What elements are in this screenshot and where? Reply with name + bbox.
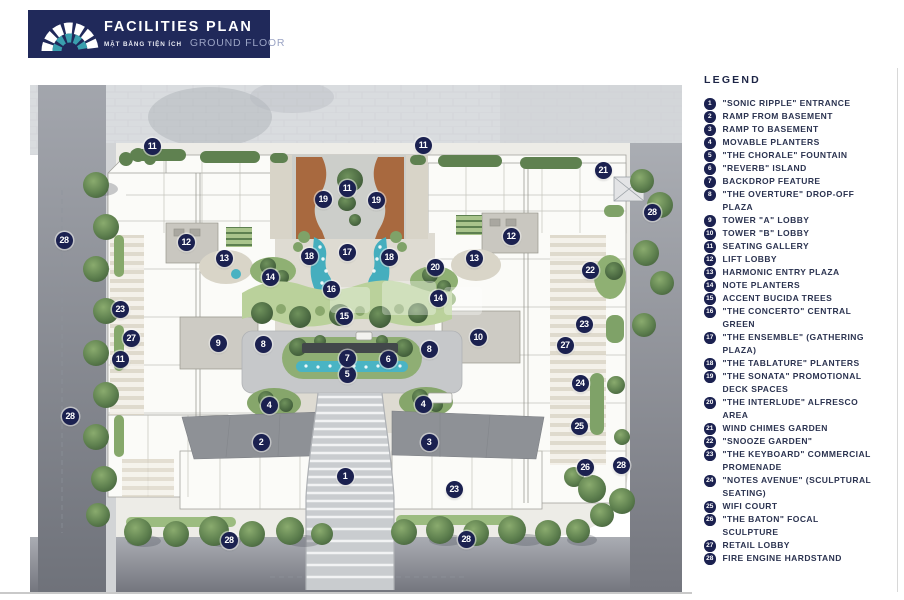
legend-item-number: 15 (704, 293, 716, 305)
legend-item-label: FIRE ENGINE HARDSTAND (723, 552, 842, 565)
legend-item: 20 "THE INTERLUDE" ALFRESCO AREA (704, 396, 900, 422)
legend-item-number: 20 (704, 397, 716, 409)
legend-item-number: 27 (704, 540, 716, 552)
legend-item-label: RAMP FROM BASEMENT (723, 110, 833, 123)
legend-list: 1 "SONIC RIPPLE" ENTRANCE 2 RAMP FROM BA… (704, 97, 900, 565)
legend-item-label: "THE BATON" FOCAL SCULPTURE (723, 513, 875, 539)
plan-marker-14: 14 (430, 290, 447, 307)
legend-item: 15 ACCENT BUCIDA TREES (704, 292, 900, 305)
plan-marker-9: 9 (210, 335, 227, 352)
legend-item-label: BACKDROP FEATURE (723, 175, 821, 188)
legend-item-number: 21 (704, 423, 716, 435)
plan-marker-19: 19 (368, 192, 385, 209)
legend-item: 19 "THE SONATA" PROMOTIONAL DECK SPACES (704, 370, 900, 396)
plan-marker-27: 27 (123, 330, 140, 347)
legend-item-label: "NOTES AVENUE" (SCULPTURAL SEATING) (723, 474, 875, 500)
plan-marker-12: 12 (178, 234, 195, 251)
header-bar: FACILITIES PLAN MẶT BẰNG TIỆN ÍCH GROUND… (28, 10, 270, 58)
plan-marker-28: 28 (644, 204, 661, 221)
legend-item: 17 "THE ENSEMBLE" (GATHERING PLAZA) (704, 331, 900, 357)
legend-item: 10 TOWER "B" LOBBY (704, 227, 900, 240)
plan-marker-13: 13 (466, 250, 483, 267)
legend-item-number: 2 (704, 111, 716, 123)
legend-item-number: 7 (704, 176, 716, 188)
legend-item-number: 6 (704, 163, 716, 175)
legend-item-number: 17 (704, 332, 716, 344)
legend-item-number: 28 (704, 553, 716, 565)
legend-item-label: TOWER "A" LOBBY (723, 214, 810, 227)
legend-item-number: 24 (704, 475, 716, 487)
plan-marker-28: 28 (458, 531, 475, 548)
plan-marker-28: 28 (62, 408, 79, 425)
legend-item-label: WIND CHIMES GARDEN (723, 422, 828, 435)
legend-item-number: 22 (704, 436, 716, 448)
legend-item: 7 BACKDROP FEATURE (704, 175, 900, 188)
plan-marker-27: 27 (557, 337, 574, 354)
legend-item-number: 18 (704, 358, 716, 370)
plan-marker-5: 5 (339, 366, 356, 383)
legend-item-number: 9 (704, 215, 716, 227)
legend-item: 3 RAMP TO BASEMENT (704, 123, 900, 136)
legend-item: 13 HARMONIC ENTRY PLAZA (704, 266, 900, 279)
legend-item-number: 8 (704, 189, 716, 201)
plan-marker-7: 7 (339, 350, 356, 367)
site-plan: 1234456788910111111111212131314141516171… (30, 85, 690, 592)
legend-item: 21 WIND CHIMES GARDEN (704, 422, 900, 435)
legend-item-label: HARMONIC ENTRY PLAZA (723, 266, 840, 279)
plan-marker-23: 23 (576, 316, 593, 333)
plan-marker-20: 20 (427, 259, 444, 276)
legend-item-number: 23 (704, 449, 716, 461)
plan-marker-22: 22 (582, 262, 599, 279)
facilities-plan-page: FACILITIES PLAN MẶT BẰNG TIỆN ÍCH GROUND… (0, 0, 904, 600)
plan-marker-8: 8 (421, 341, 438, 358)
legend-item-number: 1 (704, 98, 716, 110)
legend-item: 1 "SONIC RIPPLE" ENTRANCE (704, 97, 900, 110)
plan-marker-14: 14 (262, 269, 279, 286)
legend-item-number: 25 (704, 501, 716, 513)
legend-item-number: 11 (704, 241, 716, 253)
plan-marker-11: 11 (112, 351, 129, 368)
legend-item-number: 4 (704, 137, 716, 149)
plan-marker-26: 26 (577, 459, 594, 476)
legend-item-label: WIFI COURT (723, 500, 778, 513)
legend-item-number: 16 (704, 306, 716, 318)
plan-marker-28: 28 (221, 532, 238, 549)
plan-marker-21: 21 (595, 162, 612, 179)
plan-marker-24: 24 (572, 375, 589, 392)
plan-marker-6: 6 (380, 351, 397, 368)
legend-item-number: 10 (704, 228, 716, 240)
legend-item: 14 NOTE PLANTERS (704, 279, 900, 292)
legend-item-label: "REVERB" ISLAND (723, 162, 807, 175)
plan-marker-23: 23 (112, 301, 129, 318)
legend-item: 2 RAMP FROM BASEMENT (704, 110, 900, 123)
legend-item: 9 TOWER "A" LOBBY (704, 214, 900, 227)
legend-item: 28 FIRE ENGINE HARDSTAND (704, 552, 900, 565)
plan-marker-16: 16 (323, 281, 340, 298)
legend-item-label: "THE SONATA" PROMOTIONAL DECK SPACES (723, 370, 875, 396)
plan-marker-4: 4 (261, 397, 278, 414)
photo-right-edge (897, 68, 898, 592)
plan-marker-11: 11 (415, 137, 432, 154)
legend-item: 18 "THE TABLATURE" PLANTERS (704, 357, 900, 370)
legend-item-label: ACCENT BUCIDA TREES (723, 292, 833, 305)
legend-item: 6 "REVERB" ISLAND (704, 162, 900, 175)
legend-item: 4 MOVABLE PLANTERS (704, 136, 900, 149)
plan-marker-4: 4 (415, 396, 432, 413)
legend-item-number: 3 (704, 124, 716, 136)
subtitle-floor: GROUND FLOOR (190, 38, 285, 49)
legend-item-label: "THE INTERLUDE" ALFRESCO AREA (723, 396, 875, 422)
plan-marker-10: 10 (470, 329, 487, 346)
legend-item-label: RETAIL LOBBY (723, 539, 790, 552)
plan-marker-23: 23 (446, 481, 463, 498)
legend-item-label: SEATING GALLERY (723, 240, 810, 253)
legend-item-number: 26 (704, 514, 716, 526)
legend-title: LEGEND (704, 74, 900, 86)
legend-item-label: "THE TABLATURE" PLANTERS (723, 357, 860, 370)
legend-item-label: "SNOOZE GARDEN" (723, 435, 813, 448)
page-title: FACILITIES PLAN (104, 20, 285, 35)
legend-item: 22 "SNOOZE GARDEN" (704, 435, 900, 448)
plan-marker-11: 11 (144, 138, 161, 155)
plan-marker-12: 12 (503, 228, 520, 245)
legend-item-number: 13 (704, 267, 716, 279)
legend-item: 16 "THE CONCERTO" CENTRAL GREEN (704, 305, 900, 331)
photo-bottom-edge (0, 592, 692, 594)
legend-item: 24 "NOTES AVENUE" (SCULPTURAL SEATING) (704, 474, 900, 500)
legend-item-label: MOVABLE PLANTERS (723, 136, 820, 149)
legend-item: 27 RETAIL LOBBY (704, 539, 900, 552)
legend-item: 12 LIFT LOBBY (704, 253, 900, 266)
legend-item-label: "SONIC RIPPLE" ENTRANCE (723, 97, 851, 110)
legend-item: 25 WIFI COURT (704, 500, 900, 513)
legend-item-label: "THE CHORALE" FOUNTAIN (723, 149, 848, 162)
legend-item-label: "THE OVERTURE" DROP-OFF PLAZA (723, 188, 875, 214)
legend-item-label: "THE ENSEMBLE" (GATHERING PLAZA) (723, 331, 875, 357)
legend-item-number: 19 (704, 371, 716, 383)
legend-item-number: 12 (704, 254, 716, 266)
plan-marker-19: 19 (315, 191, 332, 208)
plan-marker-28: 28 (56, 232, 73, 249)
plan-marker-2: 2 (253, 434, 270, 451)
plan-marker-13: 13 (216, 250, 233, 267)
legend-item: 26 "THE BATON" FOCAL SCULPTURE (704, 513, 900, 539)
plan-marker-18: 18 (301, 248, 318, 265)
subtitle-vietnamese: MẶT BẰNG TIỆN ÍCH (104, 42, 182, 48)
plan-marker-3: 3 (421, 434, 438, 451)
legend-item-number: 5 (704, 150, 716, 162)
legend-item-label: NOTE PLANTERS (723, 279, 801, 292)
legend-item-label: "THE KEYBOARD" COMMERCIAL PROMENADE (723, 448, 875, 474)
plan-marker-25: 25 (571, 418, 588, 435)
arch-logo-icon (40, 14, 100, 54)
legend-item-label: "THE CONCERTO" CENTRAL GREEN (723, 305, 875, 331)
plan-marker-layer: 1234456788910111111111212131314141516171… (30, 85, 690, 592)
legend-item-number: 14 (704, 280, 716, 292)
legend-panel: LEGEND 1 "SONIC RIPPLE" ENTRANCE 2 RAMP … (704, 74, 900, 565)
legend-item-label: TOWER "B" LOBBY (723, 227, 810, 240)
plan-marker-15: 15 (336, 308, 353, 325)
legend-item: 5 "THE CHORALE" FOUNTAIN (704, 149, 900, 162)
legend-item-label: RAMP TO BASEMENT (723, 123, 819, 136)
legend-item: 8 "THE OVERTURE" DROP-OFF PLAZA (704, 188, 900, 214)
plan-marker-28: 28 (613, 457, 630, 474)
legend-item: 11 SEATING GALLERY (704, 240, 900, 253)
plan-marker-11: 11 (339, 180, 356, 197)
legend-item-label: LIFT LOBBY (723, 253, 778, 266)
plan-marker-18: 18 (381, 249, 398, 266)
legend-item: 23 "THE KEYBOARD" COMMERCIAL PROMENADE (704, 448, 900, 474)
plan-marker-17: 17 (339, 244, 356, 261)
plan-marker-8: 8 (255, 336, 272, 353)
plan-marker-1: 1 (337, 468, 354, 485)
